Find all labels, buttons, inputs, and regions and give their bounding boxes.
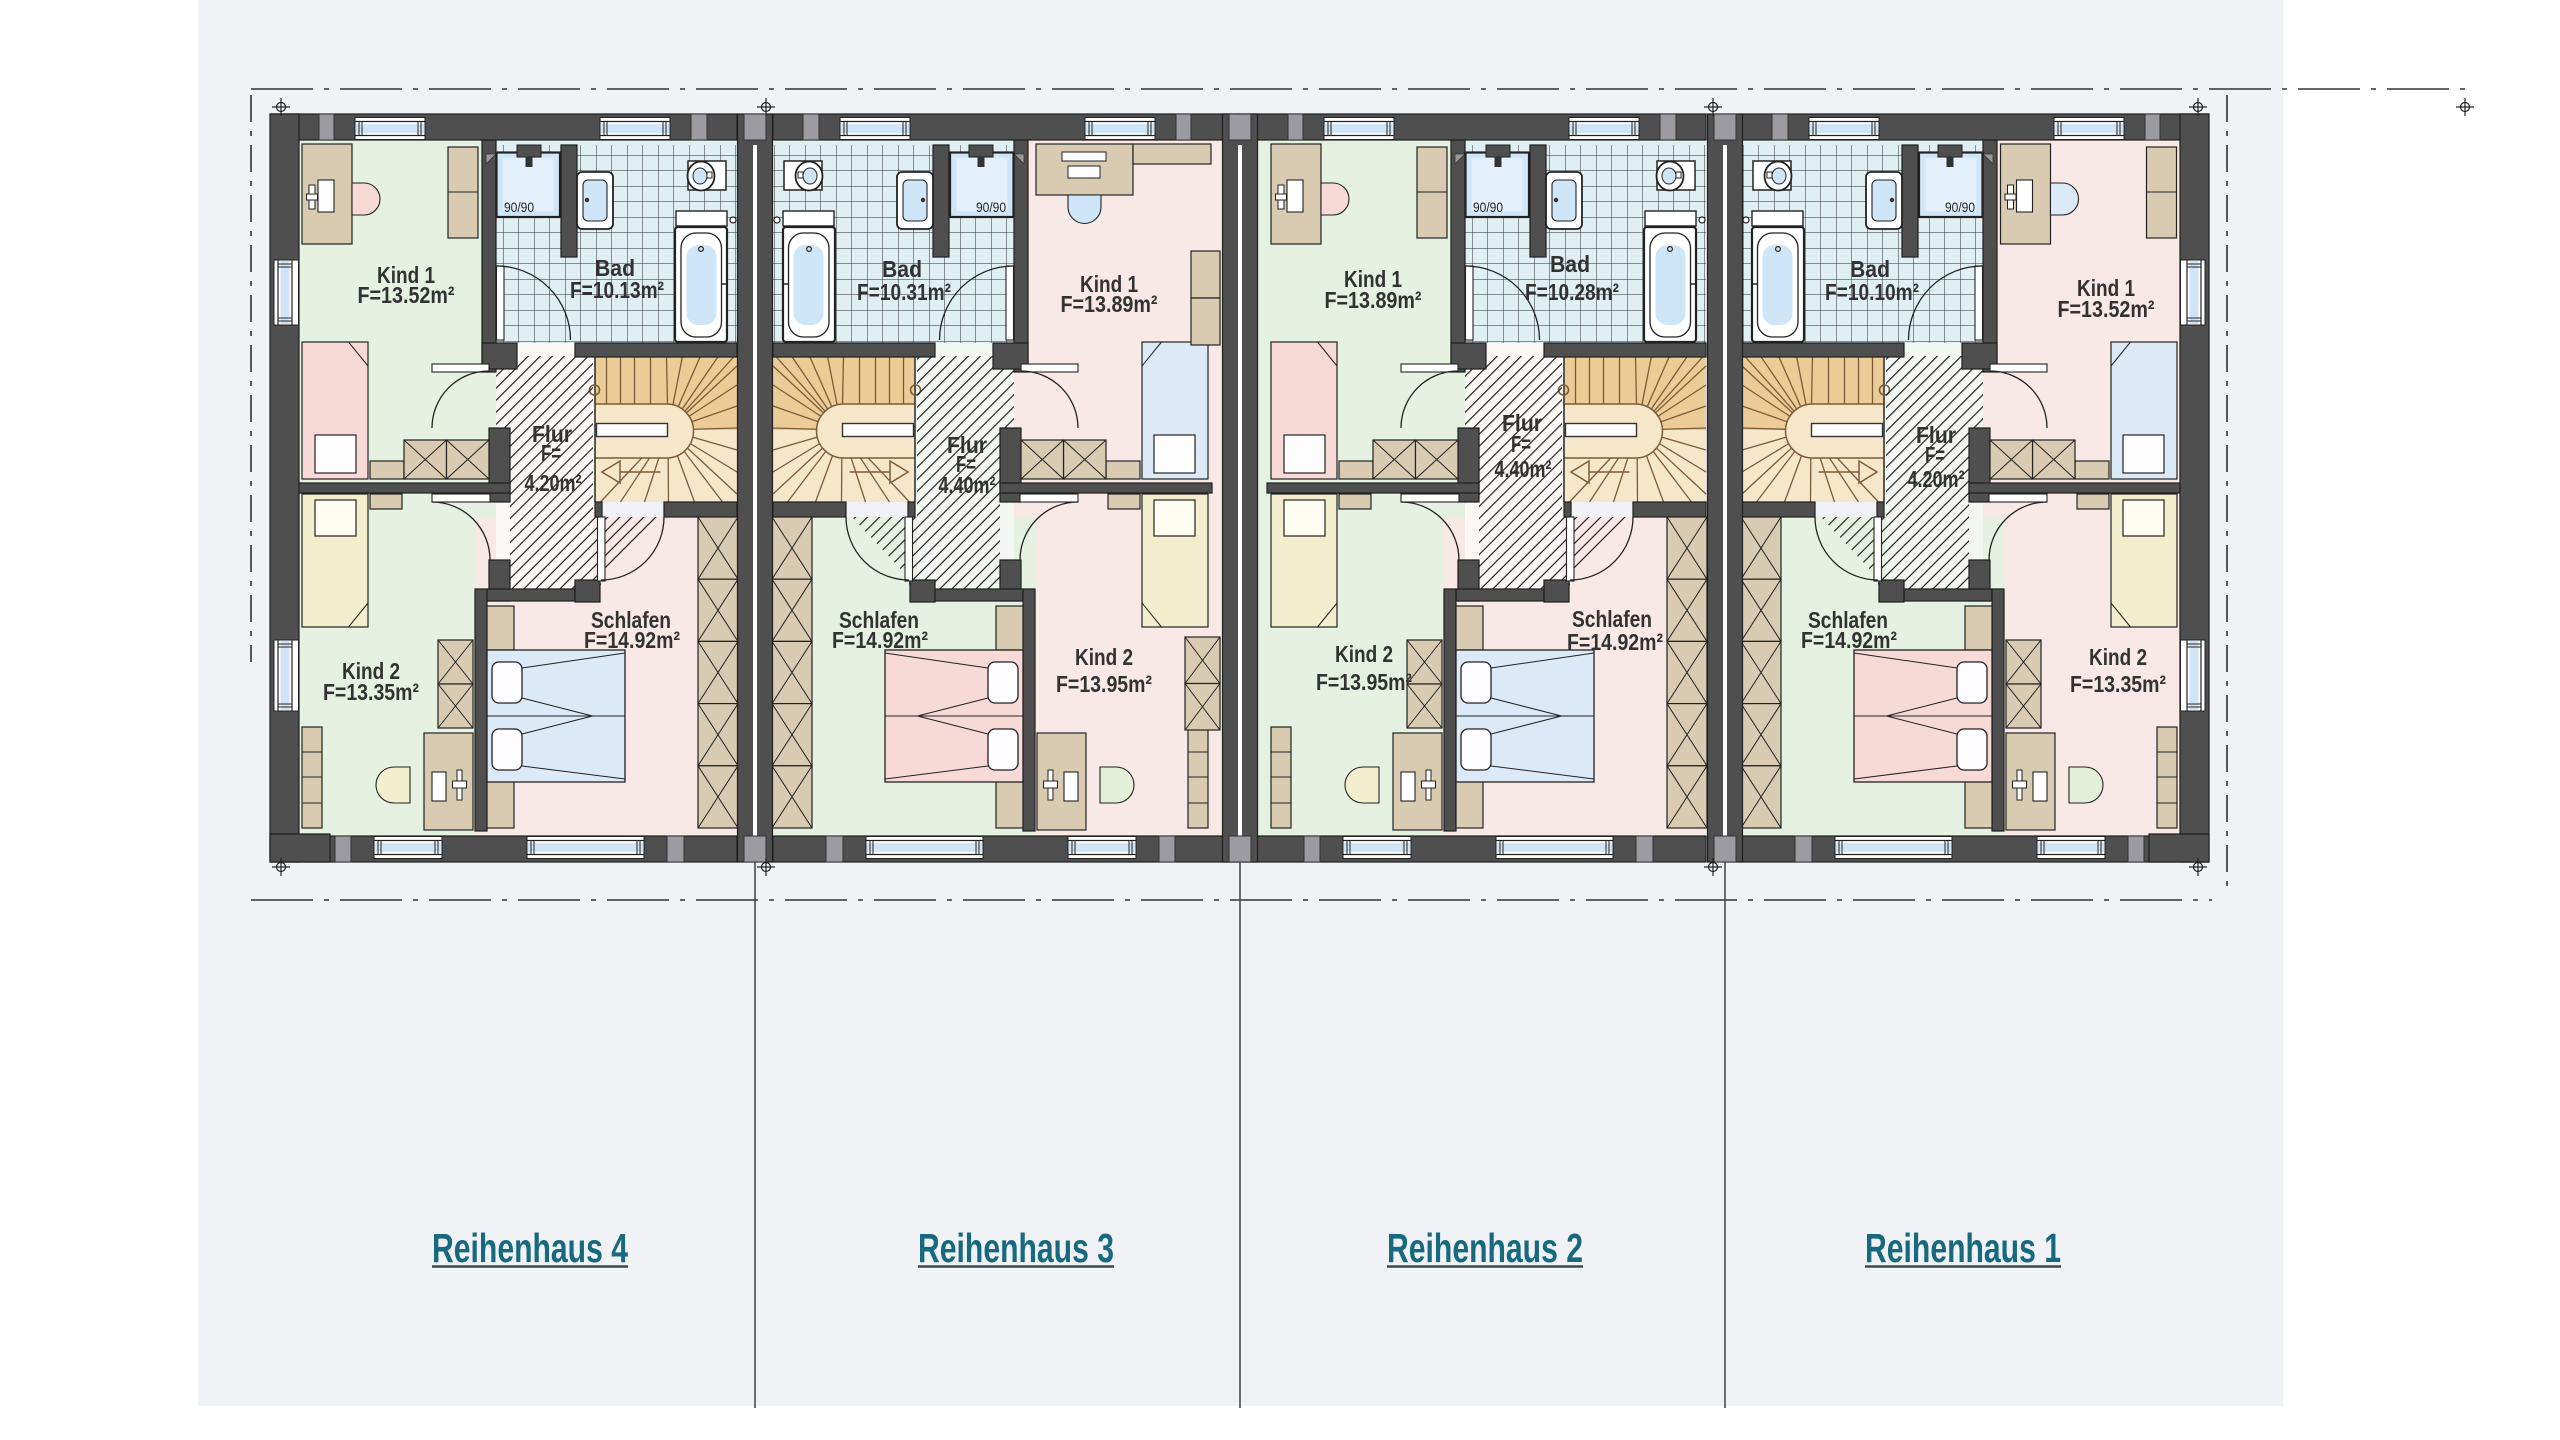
svg-text:F=13.89m²: F=13.89m² xyxy=(1061,291,1158,317)
svg-text:Reihenhaus 3: Reihenhaus 3 xyxy=(918,1225,1114,1271)
svg-text:Kind 2: Kind 2 xyxy=(1335,641,1393,667)
svg-text:F=: F= xyxy=(1925,442,1945,468)
svg-text:Kind 2: Kind 2 xyxy=(2089,644,2147,670)
svg-text:F=13.52m²: F=13.52m² xyxy=(2058,296,2155,322)
svg-text:F=14.92m²: F=14.92m² xyxy=(584,627,680,653)
svg-text:F=13.95m²: F=13.95m² xyxy=(1316,669,1412,695)
svg-text:F=13.95m²: F=13.95m² xyxy=(1056,671,1152,697)
svg-text:F=13.52m²: F=13.52m² xyxy=(358,282,455,308)
svg-text:4.40m²: 4.40m² xyxy=(939,472,996,498)
svg-text:F=: F= xyxy=(541,440,561,466)
svg-text:F=10.10m²: F=10.10m² xyxy=(1825,279,1919,305)
svg-text:90/90: 90/90 xyxy=(1473,200,1503,215)
svg-text:F=13.35m²: F=13.35m² xyxy=(2070,671,2166,697)
svg-text:Bad: Bad xyxy=(1550,251,1590,277)
svg-text:F=10.28m²: F=10.28m² xyxy=(1525,279,1619,305)
svg-text:4.40m²: 4.40m² xyxy=(1495,456,1552,482)
svg-text:Kind 2: Kind 2 xyxy=(1075,644,1133,670)
svg-text:F=: F= xyxy=(1511,431,1531,457)
svg-text:4.20m²: 4.20m² xyxy=(1908,466,1965,492)
svg-text:F=14.92m²: F=14.92m² xyxy=(1567,629,1663,655)
svg-text:4.20m²: 4.20m² xyxy=(525,470,582,496)
svg-text:90/90: 90/90 xyxy=(976,200,1006,215)
svg-text:Reihenhaus 1: Reihenhaus 1 xyxy=(1865,1225,2061,1271)
svg-text:90/90: 90/90 xyxy=(1945,200,1975,215)
svg-text:F=10.31m²: F=10.31m² xyxy=(857,279,951,305)
svg-text:F=13.35m²: F=13.35m² xyxy=(323,679,419,705)
svg-text:F=10.13m²: F=10.13m² xyxy=(570,277,664,303)
svg-text:Reihenhaus 2: Reihenhaus 2 xyxy=(1387,1225,1583,1271)
svg-text:Reihenhaus 4: Reihenhaus 4 xyxy=(432,1225,628,1271)
svg-text:F=14.92m²: F=14.92m² xyxy=(832,627,928,653)
svg-text:F=14.92m²: F=14.92m² xyxy=(1801,627,1897,653)
svg-text:F=13.89m²: F=13.89m² xyxy=(1325,287,1422,313)
svg-text:90/90: 90/90 xyxy=(504,200,534,215)
